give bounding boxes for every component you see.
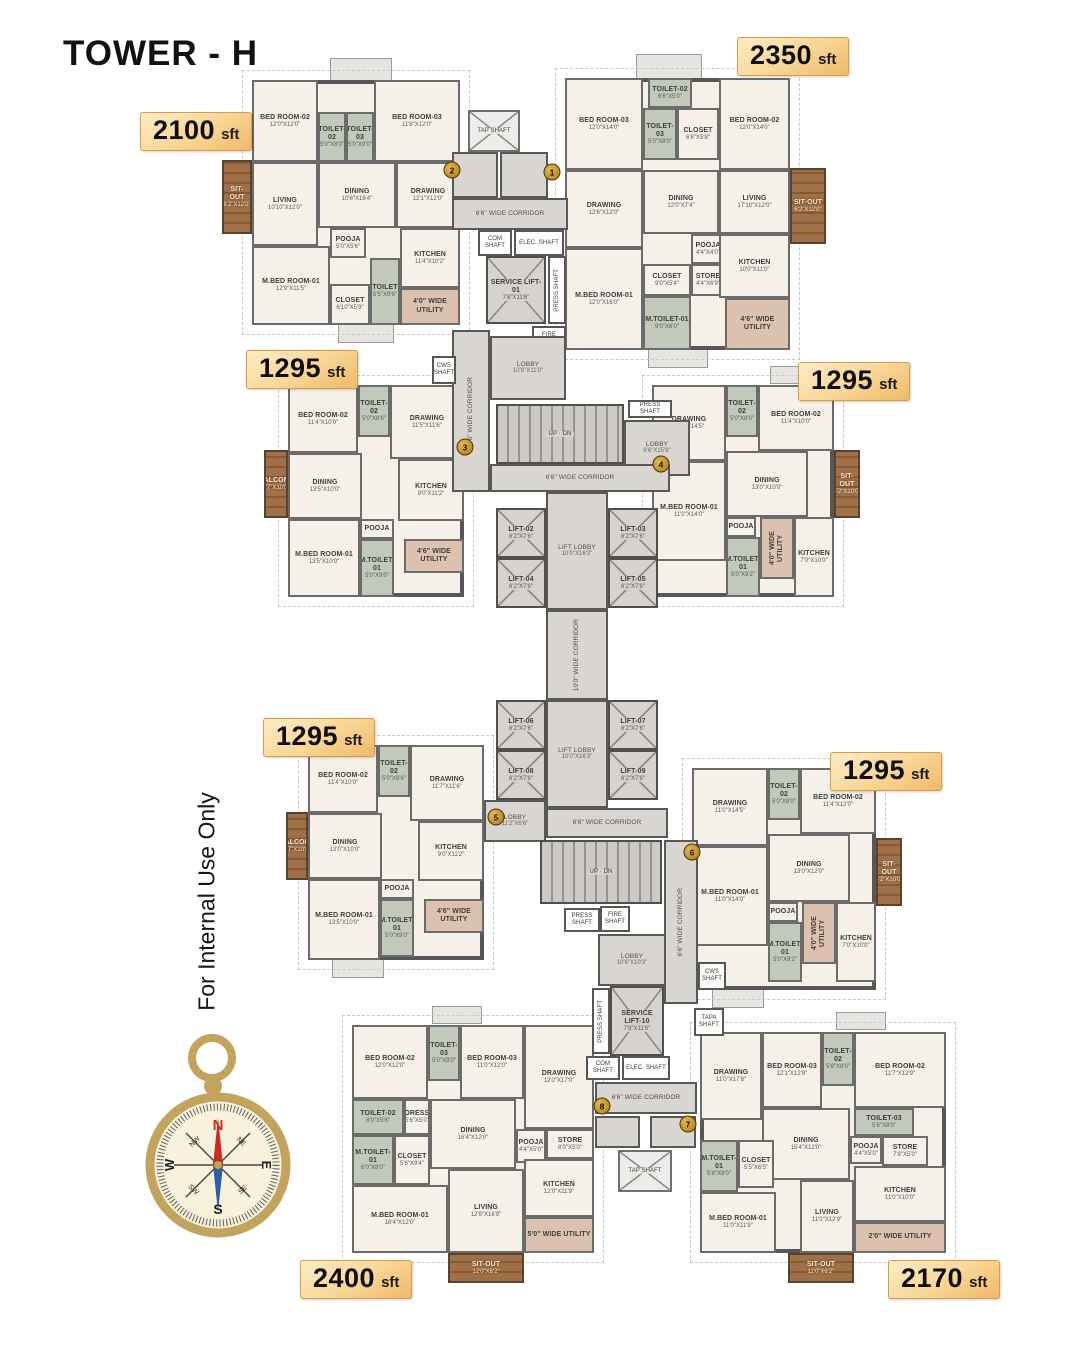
room-label: SIT-OUT bbox=[836, 473, 858, 489]
room: POOJA5'0"X5'6" bbox=[330, 228, 366, 258]
room-dimensions: 5'0"X8'6" bbox=[382, 776, 406, 783]
room-dimensions: 5'0"X9'2" bbox=[773, 957, 797, 964]
area-badge: 2170sft bbox=[888, 1260, 1000, 1299]
room-dimensions: 12'0"X14'0" bbox=[739, 125, 770, 132]
room-label: TOILET-03 bbox=[866, 1115, 901, 1123]
room-dimensions: 13'5"X10'0" bbox=[309, 559, 340, 566]
room-label: POOJA bbox=[853, 1143, 878, 1151]
room-label: M.BED ROOM-01 bbox=[262, 278, 320, 286]
room-label: BALCONY bbox=[286, 839, 308, 847]
corridor: 6'6" WIDE CORRIDOR bbox=[452, 198, 568, 230]
room-label: TOILET-03 bbox=[645, 123, 675, 139]
compass-label-w: W bbox=[162, 1158, 177, 1171]
service-shaft: TAP SHAFT bbox=[468, 110, 520, 152]
utility-room: 5'0" WIDE UTILITY bbox=[524, 1217, 594, 1253]
room-dimensions: 5'6"X5'0" bbox=[405, 1118, 429, 1125]
entry-marker: 6 bbox=[684, 844, 701, 861]
room-dimensions: 5'2"X10'0" bbox=[876, 877, 902, 884]
room: M.BED ROOM-0116'4"X12'0" bbox=[352, 1185, 448, 1253]
staircase: UP · DN bbox=[496, 404, 624, 464]
room-label: CLOSET bbox=[398, 1153, 427, 1161]
room-dimensions: 12'0"X12'0" bbox=[270, 122, 301, 129]
corridor: 6'6" WIDE CORRIDOR bbox=[595, 1082, 697, 1114]
room-dimensions: 13'0"X12'0" bbox=[794, 869, 825, 876]
room-dimensions: 11'0"X6'2" bbox=[808, 1269, 835, 1276]
room-label: CWS SHAFT bbox=[700, 969, 724, 983]
compass-center-dot bbox=[214, 1161, 223, 1170]
room: BED ROOM-0212'0"X12'0" bbox=[252, 80, 318, 162]
room-label: 6'6" WIDE CORRIDOR bbox=[476, 210, 545, 217]
room-label: LOBBY bbox=[504, 814, 526, 821]
room: POOJA bbox=[380, 879, 414, 899]
room: CLOSET6'10"X5'9" bbox=[330, 284, 370, 325]
lift: LIFT-048'2"X7'6" bbox=[496, 558, 546, 608]
room-label: KITCHEN bbox=[415, 483, 447, 491]
toilet-room: TOILET-028'0"X5'6" bbox=[352, 1099, 404, 1135]
room: BED ROOM-0212'0"X14'0" bbox=[719, 78, 790, 170]
service-shaft: CWS SHAFT bbox=[698, 962, 726, 990]
room: DINING13'0"X12'0" bbox=[768, 834, 850, 902]
room-label: BED ROOM-02 bbox=[875, 1063, 925, 1071]
room-label: 4'0" WIDE UTILITY bbox=[402, 298, 458, 314]
room-dimensions: 11'8"X12'0" bbox=[402, 122, 432, 129]
entry-marker: 7 bbox=[680, 1116, 697, 1133]
room: M.BED ROOM-0112'9"X11'5" bbox=[252, 246, 330, 325]
room-label: POOJA bbox=[335, 236, 360, 244]
room-dimensions: 10'10"X12'0" bbox=[268, 205, 302, 212]
toilet-room: M.TOILET-015'0"X9'2" bbox=[726, 537, 760, 597]
room-label: M.BED ROOM-01 bbox=[709, 1215, 767, 1223]
room-dimensions: 12'0"X6'2" bbox=[472, 1269, 499, 1276]
room-label: 10'0" WIDE CORRIDOR bbox=[573, 619, 580, 691]
area-unit: sft bbox=[879, 376, 897, 393]
room-dimensions: 13'5"X10'0" bbox=[310, 487, 341, 494]
room-dimensions: 8'2"X7'6" bbox=[507, 776, 535, 783]
room-label: CLOSET bbox=[742, 1157, 771, 1165]
room: DINING12'0"X7'4" bbox=[643, 170, 719, 234]
room: BED ROOM-0212'0"X12'0" bbox=[352, 1025, 428, 1099]
room-dimensions: 12'0"X14'0" bbox=[589, 125, 620, 132]
room: KITCHEN10'0"X11'0" bbox=[719, 234, 790, 298]
room: POOJA bbox=[726, 517, 756, 537]
room-label: DINING bbox=[668, 195, 693, 203]
room-label: CWS SHAFT bbox=[434, 363, 454, 377]
room-label: M.BED ROOM-01 bbox=[575, 292, 633, 300]
room-dimensions: 11'0"X17'8" bbox=[716, 1077, 746, 1084]
room-label: LIFT LOBBY bbox=[558, 747, 596, 754]
room-label: TOILET bbox=[372, 284, 397, 292]
room-label: M.BED ROOM-01 bbox=[315, 912, 373, 920]
toilet-room: TOILET-025'0"X8'0" bbox=[768, 768, 800, 820]
area-value: 2170 bbox=[901, 1263, 963, 1294]
room-dimensions: 5'0"X8'0" bbox=[730, 416, 754, 423]
room-label: UP · DN bbox=[587, 869, 616, 876]
room-label: TOILET-02 bbox=[360, 400, 388, 416]
room-dimensions: 6'0"X8'0" bbox=[361, 1165, 385, 1172]
corridor: LOBBY10'6"X11'0" bbox=[490, 336, 566, 400]
room-dimensions: 12'1"X12'9" bbox=[777, 1071, 808, 1078]
room: DINING10'8"X16'4" bbox=[318, 162, 396, 228]
room-label: BED ROOM-03 bbox=[579, 117, 629, 125]
room-dimensions: 4'4"X6'9" bbox=[696, 281, 720, 288]
service-shaft: ELEC. SHAFT bbox=[622, 1056, 670, 1080]
staircase: UP · DN bbox=[540, 840, 662, 904]
room-label: DRAWING bbox=[410, 415, 445, 423]
room: LIVING11'0"X12'9" bbox=[800, 1180, 854, 1253]
room: DRAWING11'7"X11'6" bbox=[410, 745, 484, 821]
room: M.BED ROOM-0111'0"X14'0" bbox=[692, 846, 768, 946]
room-label: UP · DN bbox=[546, 431, 575, 438]
room-dimensions: 8'2"X7'6" bbox=[619, 776, 647, 783]
room-dimensions: 4'4"X5'0" bbox=[854, 1151, 878, 1158]
room: BED ROOM-0312'0"X14'0" bbox=[565, 78, 643, 170]
room-dimensions: 12'6"X12'0" bbox=[589, 210, 620, 217]
utility-room: 4'0" WIDE UTILITY bbox=[802, 902, 836, 964]
compass-label-n: N bbox=[213, 1117, 224, 1134]
room-dimensions: 8'2"X7'6" bbox=[507, 584, 535, 591]
room: DRAWING12'6"X12'0" bbox=[565, 170, 643, 248]
room-label: DRAWING bbox=[713, 800, 748, 808]
room-label: CLOSET bbox=[336, 297, 365, 305]
room-dimensions: 10'0"X16'3" bbox=[562, 754, 593, 761]
room-label: 4'6" WIDE UTILITY bbox=[727, 316, 788, 332]
room-label: PRESS SHAFT bbox=[554, 269, 561, 312]
room-dimensions: 12'0"X12'0" bbox=[375, 1063, 406, 1070]
room-dimensions: 5'0"X9'0" bbox=[348, 142, 372, 149]
utility-room: 4'0" WIDE UTILITY bbox=[760, 517, 794, 579]
area-badge: 2100sft bbox=[140, 112, 252, 151]
room-dimensions: 11'4"X10'0" bbox=[328, 780, 358, 787]
entrance-deck bbox=[648, 348, 708, 368]
balcony: SIT-OUT11'0"X6'2" bbox=[788, 1253, 854, 1283]
room-label: LIFT-09 bbox=[618, 768, 647, 776]
compass-label-s: S bbox=[213, 1201, 222, 1217]
toilet-room: TOILET-035'0"X8'0" bbox=[643, 108, 677, 160]
room: M.BED ROOM-0113'5"X10'0" bbox=[308, 879, 380, 960]
room-label: TOILET-03 bbox=[430, 1042, 458, 1058]
room-dimensions: 11'4"X10'0" bbox=[781, 419, 811, 426]
entry-marker: 2 bbox=[444, 162, 461, 179]
room: KITCHEN11'0"X10'0" bbox=[854, 1166, 946, 1222]
room-label: BED ROOM-02 bbox=[813, 794, 863, 802]
toilet-room: M.TOILET-015'0"X9'0" bbox=[380, 899, 414, 957]
room-dimensions: 9'0"X6'0" bbox=[655, 324, 679, 331]
area-unit: sft bbox=[327, 364, 345, 381]
entry-marker: 8 bbox=[594, 1098, 611, 1115]
toilet-room: TOILET-026'6"X5'0" bbox=[648, 78, 692, 108]
watermark-text: For Internal Use Only bbox=[194, 752, 221, 1052]
entrance-deck bbox=[432, 1006, 482, 1024]
service-shaft: CWS SHAFT bbox=[432, 356, 456, 384]
room-dimensions: 12'0"X17'0" bbox=[544, 1078, 575, 1085]
corridor: LOBBY10'6"X10'3" bbox=[598, 934, 666, 986]
room-dimensions: 8'2"X7'6" bbox=[507, 534, 535, 541]
service-shaft: COM SHAFT bbox=[478, 230, 512, 256]
room-dimensions: 12'9"X16'9" bbox=[471, 1212, 502, 1219]
room-dimensions: 10'6"X10'3" bbox=[617, 960, 648, 967]
room-label: DINING bbox=[332, 839, 357, 847]
entrance-deck bbox=[338, 323, 394, 343]
room-label: LIFT-05 bbox=[618, 576, 647, 584]
room: M.BED ROOM-0113'5"X10'0" bbox=[288, 519, 360, 597]
lift: LIFT-078'2"X7'6" bbox=[608, 700, 658, 750]
room-label: POOJA bbox=[384, 885, 409, 893]
room: BED ROOM-0311'0"X12'0" bbox=[460, 1025, 524, 1099]
room-label: TOILET-02 bbox=[728, 400, 756, 416]
room-label: KITCHEN bbox=[840, 935, 872, 943]
room: M.BED ROOM-0112'0"X16'0" bbox=[565, 248, 643, 350]
room: POOJA4'4"X5'0" bbox=[850, 1136, 882, 1164]
room-label: LIFT LOBBY bbox=[558, 544, 596, 551]
entrance-deck bbox=[332, 958, 384, 978]
area-badge: 1295sft bbox=[830, 752, 942, 791]
room-label: SIT-OUT bbox=[878, 861, 900, 877]
room-label: M.TOILET-01 bbox=[726, 556, 760, 572]
room-label: KITCHEN bbox=[884, 1187, 916, 1195]
room: STORE8'0"X5'0" bbox=[546, 1129, 594, 1159]
room: KITCHEN7'0"X10'0" bbox=[836, 902, 876, 982]
entry-marker: 5 bbox=[488, 809, 505, 826]
balcony: SIT-OUT12'0"X6'2" bbox=[448, 1253, 524, 1283]
balcony: SIT-OUT5'2"X10'0" bbox=[876, 838, 902, 906]
room-label: SIT-OUT bbox=[224, 186, 250, 202]
room-dimensions: 5'2"X10'0" bbox=[834, 489, 860, 496]
room-label: KITCHEN bbox=[739, 259, 771, 267]
room-label: BED ROOM-03 bbox=[467, 1055, 517, 1063]
area-unit: sft bbox=[818, 51, 836, 68]
room-label: M.TOILET-01 bbox=[768, 941, 802, 957]
room: CLOSET5'6"X9'4" bbox=[394, 1135, 430, 1185]
corridor: 6'6" WIDE CORRIDOR bbox=[452, 330, 490, 492]
page-title: TOWER - H bbox=[63, 34, 258, 74]
utility-room: 4'6" WIDE UTILITY bbox=[424, 899, 484, 933]
service-shaft: FIRE SHAFT bbox=[600, 906, 630, 932]
room-label: TAPA SHAFT bbox=[696, 1015, 722, 1029]
area-value: 1295 bbox=[259, 353, 321, 384]
room-label: FIRE SHAFT bbox=[602, 912, 628, 926]
service-shaft: TAP SHAFT bbox=[618, 1150, 672, 1192]
balcony: SIT-OUT6'2"X12'0" bbox=[222, 160, 252, 234]
utility-room: 4'6" WIDE UTILITY bbox=[404, 539, 464, 573]
room-dimensions: 16'4"X12'0" bbox=[385, 1220, 416, 1227]
room-label: TOILET-02 bbox=[770, 783, 798, 799]
room-dimensions: 9'0"X11'2" bbox=[418, 491, 445, 498]
area-unit: sft bbox=[969, 1274, 987, 1291]
lift: SERVICE LIFT-107'6"X11'6" bbox=[610, 986, 664, 1056]
room-label: LIFT-02 bbox=[506, 526, 535, 534]
corridor: 10'0" WIDE CORRIDOR bbox=[546, 610, 608, 700]
room-label: BED ROOM-02 bbox=[365, 1055, 415, 1063]
room-label: PRESS SHAFT bbox=[566, 913, 598, 927]
area-badge: 2400sft bbox=[300, 1260, 412, 1299]
room-dimensions: 9'0"X5'4" bbox=[655, 281, 679, 288]
room-dimensions: 9'0"X11'2" bbox=[438, 852, 465, 859]
room-label: DRAWING bbox=[430, 776, 465, 784]
room-dimensions: 10'0"X16'3" bbox=[562, 551, 593, 558]
room-dimensions: 8'2"X7'6" bbox=[619, 726, 647, 733]
lift: LIFT-038'2"X7'6" bbox=[608, 508, 658, 558]
room-label: TOILET-02 bbox=[652, 86, 687, 94]
room-label: SERVICE LIFT-10 bbox=[612, 1010, 662, 1026]
room: LIVING12'9"X16'9" bbox=[448, 1169, 524, 1253]
utility-room: 2'0" WIDE UTILITY bbox=[854, 1222, 946, 1253]
area-value: 2350 bbox=[750, 40, 812, 71]
room-label: LOBBY bbox=[517, 361, 539, 368]
room: LIVING17'10"X12'0" bbox=[719, 170, 790, 234]
balcony: BALCONY5'7"X10'0" bbox=[264, 450, 288, 518]
room-label: KITCHEN bbox=[435, 844, 467, 852]
room-label: M.TOILET-01 bbox=[645, 316, 688, 324]
room: POOJA4'4"X5'0" bbox=[516, 1129, 546, 1163]
room: BED ROOM-0312'1"X12'9" bbox=[762, 1032, 822, 1108]
toilet-room: M.TOILET-015'0"X9'2" bbox=[768, 922, 802, 982]
room-dimensions: 6'6"X15'9" bbox=[643, 448, 670, 455]
toilet-room: M.TOILET-019'0"X6'0" bbox=[643, 296, 691, 350]
room-label: BED ROOM-02 bbox=[318, 772, 368, 780]
room-dimensions: 11'0"X14'0" bbox=[674, 512, 704, 519]
room-label: LIVING bbox=[743, 195, 767, 203]
service-shaft: PRESS SHAFT bbox=[628, 400, 672, 418]
service-shaft: COM SHAFT bbox=[586, 1056, 620, 1080]
room-dimensions: 11'4"X12'0" bbox=[823, 802, 853, 809]
room-dimensions: 7'8"X5'0" bbox=[893, 1152, 917, 1159]
room-label: DRAWING bbox=[411, 188, 446, 196]
lift: LIFT-068'2"X7'6" bbox=[496, 700, 546, 750]
room: LIVING10'10"X12'0" bbox=[252, 162, 318, 246]
room-label: DRESS bbox=[405, 1110, 430, 1118]
room-label: 6'6" WIDE CORRIDOR bbox=[612, 1094, 681, 1101]
room-dimensions: 5'5"X6'5" bbox=[744, 1165, 768, 1172]
room-label: LIVING bbox=[474, 1204, 498, 1212]
compass-handle-knob bbox=[204, 1077, 222, 1095]
area-value: 2400 bbox=[313, 1263, 375, 1294]
balcony: SIT-OUT5'2"X10'0" bbox=[834, 450, 860, 518]
toilet-room: TOILET-035'0"X8'0" bbox=[428, 1025, 460, 1081]
room-label: M.TOILET-01 bbox=[360, 557, 394, 573]
entry-marker: 4 bbox=[653, 456, 670, 473]
room-label: CLOSET bbox=[653, 273, 682, 281]
entrance-deck bbox=[636, 54, 702, 80]
room-dimensions: 10'8"X16'4" bbox=[342, 196, 373, 203]
room-dimensions: 7'0"X10'0" bbox=[800, 558, 827, 565]
room-label: ELEC. SHAFT bbox=[519, 240, 559, 247]
service-shaft: PRESS SHAFT bbox=[592, 988, 610, 1054]
toilet-room: TOILET-025'0"X8'6" bbox=[358, 385, 390, 437]
room-label: TOILET-02 bbox=[380, 760, 408, 776]
room: M.BED ROOM-0111'0"X11'9" bbox=[700, 1192, 776, 1253]
room-dimensions: 5'0"X9'0" bbox=[365, 573, 389, 580]
room-label: M.BED ROOM-01 bbox=[295, 551, 353, 559]
room: CLOSET5'5"X6'5" bbox=[738, 1140, 774, 1188]
room-label: M.TOILET-01 bbox=[701, 1155, 736, 1171]
room-label: PRESS SHAFT bbox=[630, 402, 670, 416]
utility-room: 4'0" WIDE UTILITY bbox=[400, 288, 460, 325]
room-label: M.BED ROOM-01 bbox=[660, 504, 718, 512]
service-shaft: PRESS SHAFT bbox=[548, 256, 566, 324]
room-label: BALCONY bbox=[264, 477, 288, 485]
lift: LIFT-028'2"X7'6" bbox=[496, 508, 546, 558]
toilet-room: M.TOILET-015'8"X8'0" bbox=[700, 1140, 738, 1192]
area-value: 1295 bbox=[811, 365, 873, 396]
room-dimensions: 5'8"X8'0" bbox=[707, 1171, 731, 1178]
compass-handle-ring bbox=[192, 1038, 232, 1078]
room-dimensions: 5'0"X5'6" bbox=[336, 244, 360, 251]
room-dimensions: 11'0"X11'9" bbox=[723, 1223, 753, 1230]
room-label: DRAWING bbox=[542, 1070, 577, 1078]
room-label: M.TOILET-01 bbox=[380, 917, 414, 933]
area-unit: sft bbox=[381, 1274, 399, 1291]
room: KITCHEN9'0"X11'2" bbox=[418, 821, 484, 881]
corridor: LIFT LOBBY10'0"X16'3" bbox=[546, 492, 608, 610]
room: DINING13'0"X10'0" bbox=[308, 813, 382, 879]
room-label: 2'0" WIDE UTILITY bbox=[868, 1233, 931, 1241]
compass: N S E W NE SE SW NW bbox=[140, 1028, 296, 1243]
room-dimensions: 5'8"X8'0" bbox=[826, 1064, 850, 1071]
room-dimensions: 6'6"X5'8" bbox=[686, 135, 710, 142]
room-dimensions: 5'7"X10'0" bbox=[286, 847, 308, 854]
room-label: SIT-OUT bbox=[794, 199, 822, 207]
room-label: POOJA bbox=[770, 908, 795, 916]
entrance-deck bbox=[712, 988, 764, 1008]
room-label: STORE bbox=[893, 1144, 918, 1152]
corridor bbox=[500, 152, 548, 198]
room-label: BED ROOM-02 bbox=[298, 412, 348, 420]
room-label: 6'6" WIDE CORRIDOR bbox=[573, 819, 642, 826]
room: DINING13'0"X10'0" bbox=[726, 451, 808, 517]
room-dimensions: 11'4"X10'0" bbox=[308, 420, 338, 427]
area-unit: sft bbox=[344, 732, 362, 749]
balcony: BALCONY5'7"X10'0" bbox=[286, 812, 308, 880]
corridor: 6'6" WIDE CORRIDOR bbox=[546, 808, 668, 838]
entrance-deck bbox=[836, 1012, 886, 1030]
room-dimensions: 6'2"X12'0" bbox=[223, 202, 250, 209]
entry-marker: 1 bbox=[544, 164, 561, 181]
area-badge: 1295sft bbox=[798, 362, 910, 401]
room-label: 4'0" WIDE UTILITY bbox=[811, 904, 827, 962]
corridor: 6'6" WIDE CORRIDOR bbox=[490, 464, 670, 492]
room-label: DINING bbox=[344, 188, 369, 196]
room-dimensions: 5'5"X9'6" bbox=[373, 292, 397, 299]
room-label: 6'6" WIDE CORRIDOR bbox=[467, 377, 474, 446]
room-dimensions: 12'0"X16'0" bbox=[589, 300, 620, 307]
room-dimensions: 11'0"X14'5" bbox=[715, 808, 745, 815]
room-dimensions: 7'6"X11'6" bbox=[501, 295, 532, 302]
room: CLOSET9'0"X5'4" bbox=[643, 264, 691, 296]
area-unit: sft bbox=[221, 126, 239, 143]
room: POOJA bbox=[360, 519, 394, 539]
corridor bbox=[595, 1116, 640, 1148]
room-label: DINING bbox=[793, 1137, 818, 1145]
room: BED ROOM-0311'8"X12'0" bbox=[374, 80, 460, 162]
room-label: LIFT-03 bbox=[618, 526, 647, 534]
room-dimensions: 10'6"X11'0" bbox=[513, 368, 543, 375]
entry-marker: 3 bbox=[457, 439, 474, 456]
room: DRAWING12'0"X17'0" bbox=[524, 1025, 594, 1129]
room-dimensions: 8'0"X5'0" bbox=[558, 1145, 582, 1152]
room-dimensions: 4'4"X4'0" bbox=[696, 250, 720, 257]
room: DINING15'4"X12'0" bbox=[762, 1108, 850, 1180]
compass-label-e: E bbox=[259, 1161, 274, 1170]
toilet-room: M.TOILET-015'0"X9'0" bbox=[360, 539, 394, 597]
area-unit: sft bbox=[911, 766, 929, 783]
room-label: POOJA bbox=[518, 1139, 543, 1147]
room: KITCHEN11'4"X10'2" bbox=[400, 228, 460, 288]
room-dimensions: 11'7"X11'6" bbox=[432, 784, 462, 791]
toilet-room: TOILET-035'8"X8'0" bbox=[854, 1108, 914, 1136]
room-label: BED ROOM-03 bbox=[767, 1063, 817, 1071]
area-badge: 1295sft bbox=[263, 718, 375, 757]
room-label: COM SHAFT bbox=[588, 1061, 618, 1075]
